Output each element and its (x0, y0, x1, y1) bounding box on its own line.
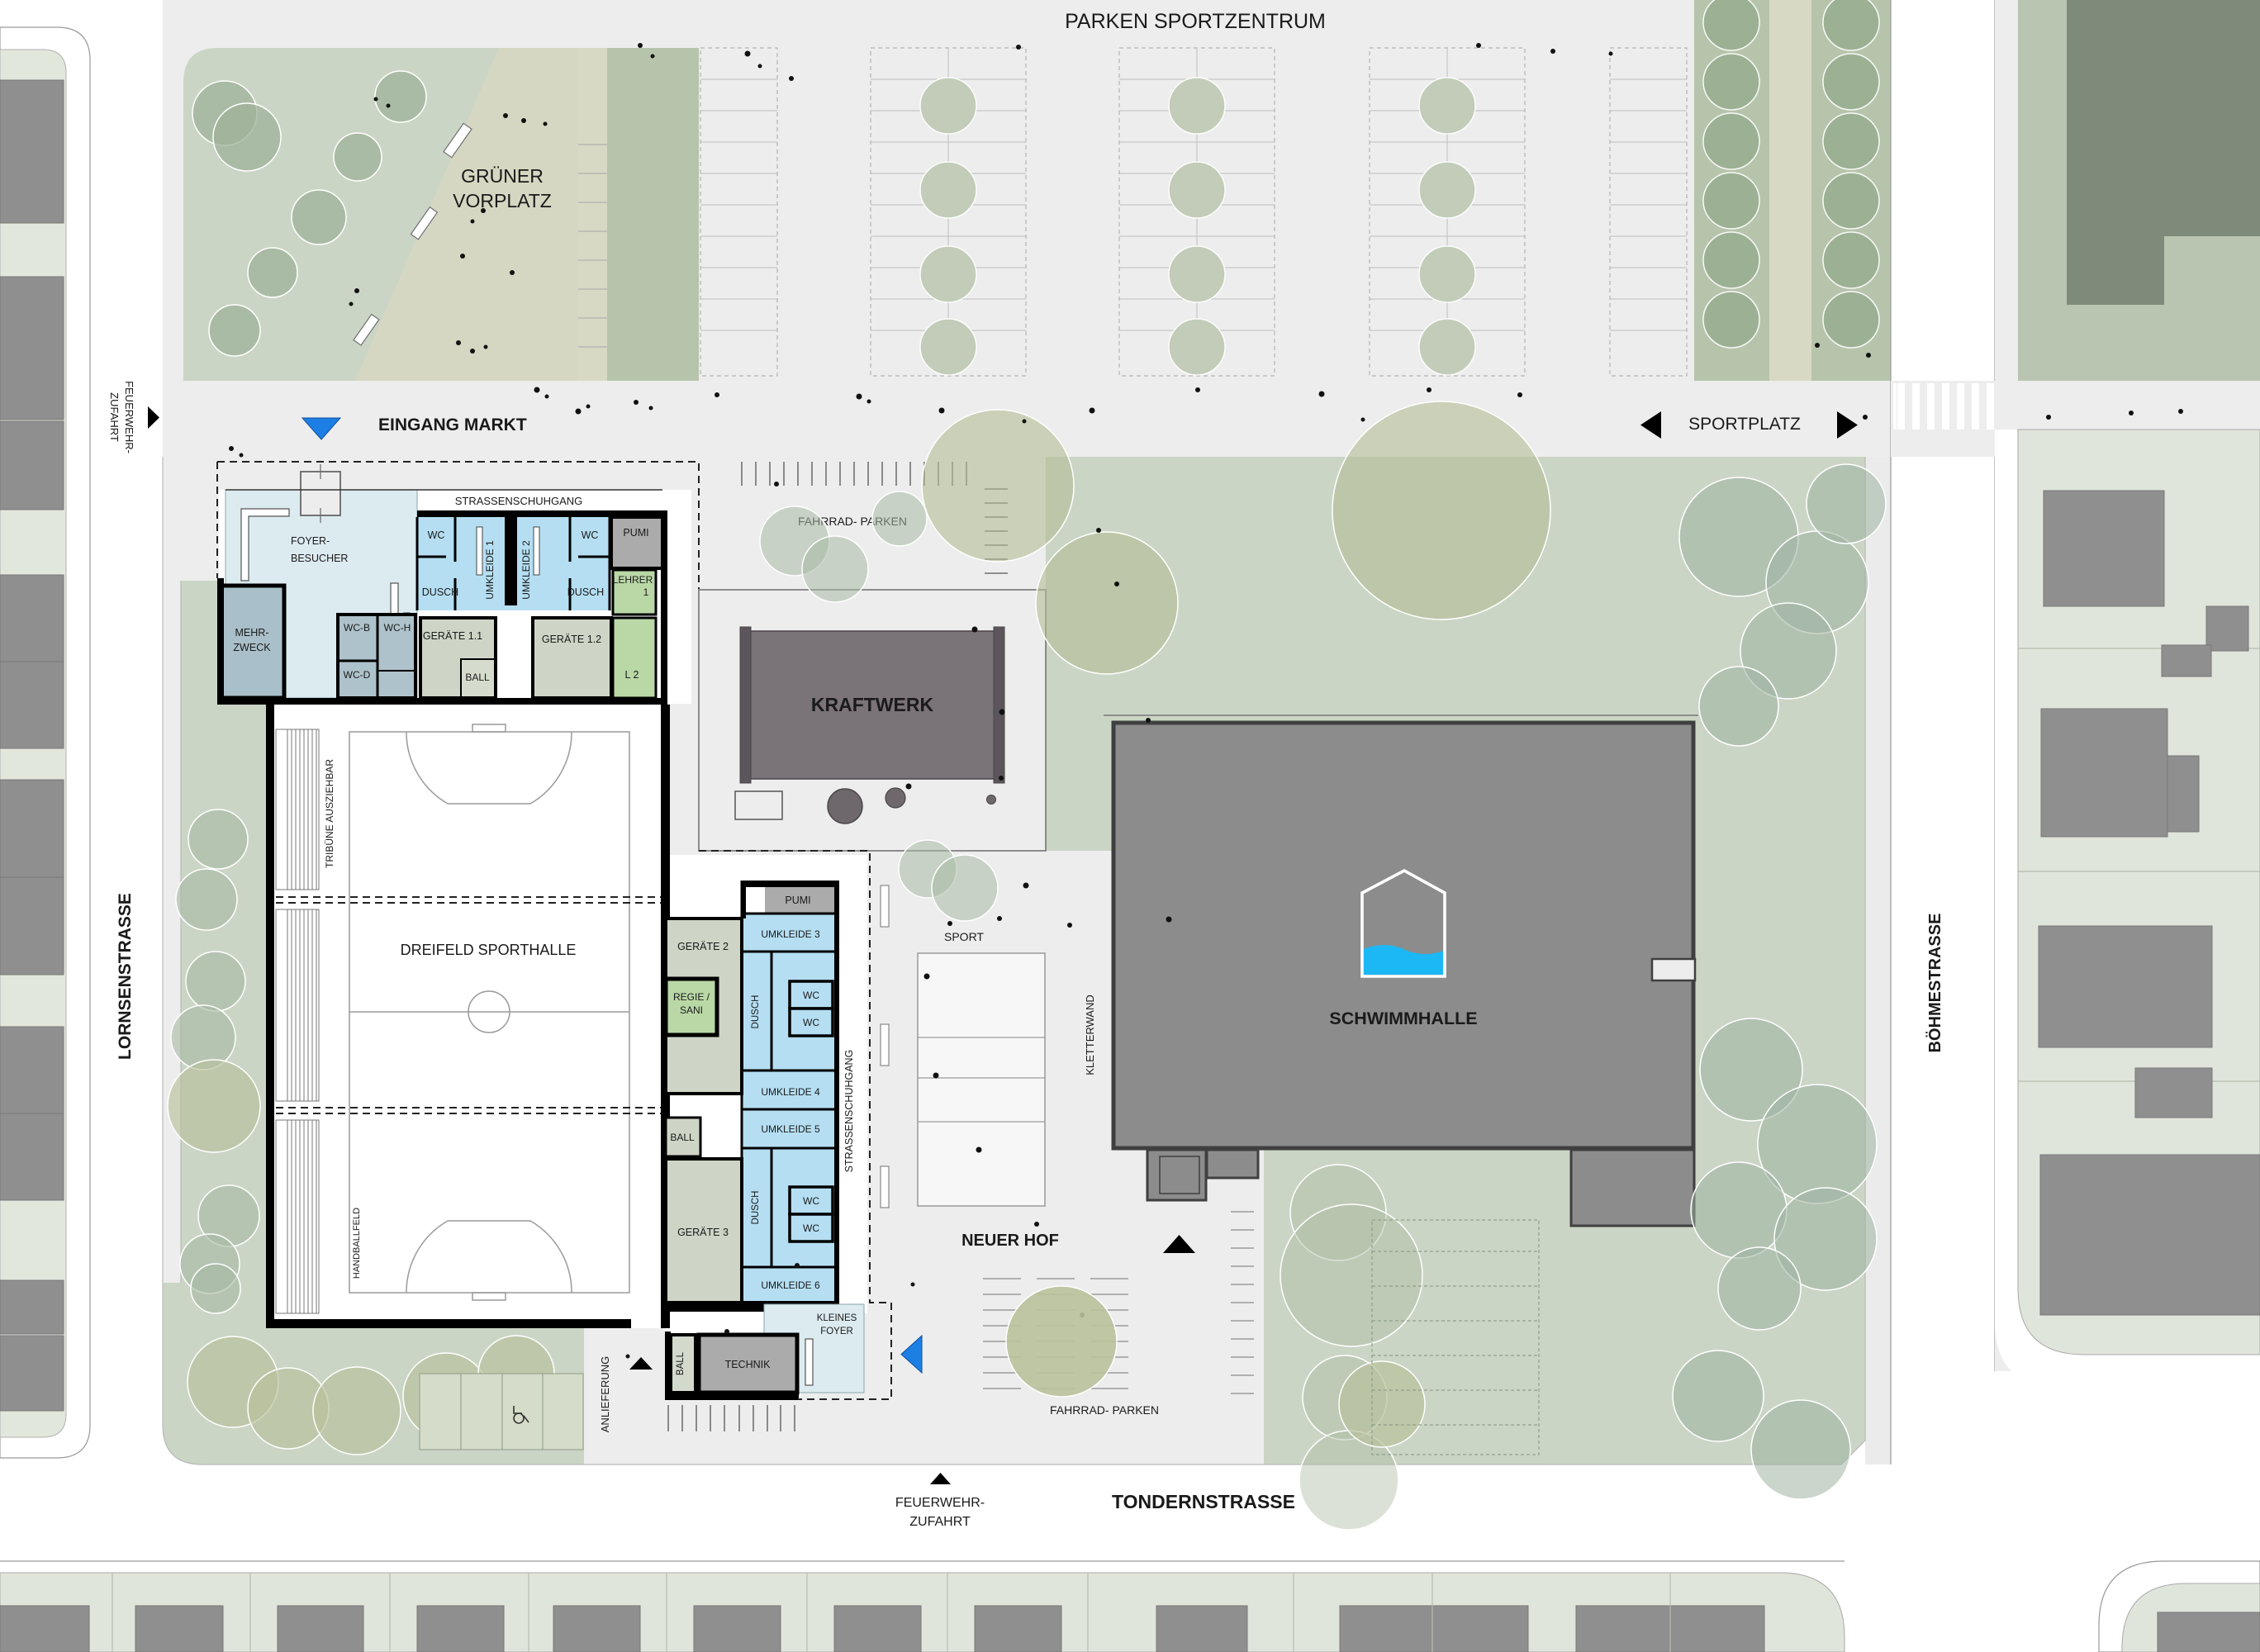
svg-text:1: 1 (643, 586, 649, 598)
svg-text:LEHRER: LEHRER (613, 574, 653, 586)
svg-text:TONDERNSTRASSE: TONDERNSTRASSE (1112, 1491, 1295, 1512)
svg-text:BESUCHER: BESUCHER (291, 553, 348, 564)
svg-text:ANLIEFERUNG: ANLIEFERUNG (599, 1356, 611, 1432)
svg-text:REGIE /: REGIE / (673, 991, 710, 1003)
svg-text:EINGANG MARKT: EINGANG MARKT (378, 415, 527, 434)
svg-text:PARKEN SPORTZENTRUM: PARKEN SPORTZENTRUM (1065, 10, 1326, 33)
svg-text:WC: WC (803, 1222, 819, 1234)
svg-text:UMKLEIDE 4: UMKLEIDE 4 (761, 1086, 820, 1098)
svg-text:WC-B: WC-B (344, 622, 370, 634)
svg-text:SPORTPLATZ: SPORTPLATZ (1688, 415, 1801, 434)
svg-text:BALL: BALL (670, 1132, 695, 1143)
svg-text:ZUFAHRT: ZUFAHRT (909, 1515, 971, 1529)
svg-text:VORPLATZ: VORPLATZ (453, 190, 552, 211)
svg-text:L 2: L 2 (625, 669, 639, 681)
svg-text:GERÄTE 1.2: GERÄTE 1.2 (542, 634, 601, 645)
svg-text:STRASSENSCHUHGANG: STRASSENSCHUHGANG (843, 1050, 855, 1173)
svg-text:PUMI: PUMI (623, 527, 648, 539)
svg-text:WC: WC (803, 1195, 819, 1207)
svg-text:KRAFTWERK: KRAFTWERK (811, 694, 934, 715)
svg-text:WC-D: WC-D (344, 669, 371, 681)
svg-text:STRASSENSCHUHGANG: STRASSENSCHUHGANG (455, 495, 583, 507)
svg-text:WC: WC (803, 990, 819, 1001)
svg-text:KLETTERWAND: KLETTERWAND (1084, 995, 1096, 1075)
svg-text:FOYER-: FOYER- (291, 535, 330, 547)
svg-text:MEHR-: MEHR- (235, 627, 269, 638)
svg-text:SANI: SANI (680, 1004, 703, 1016)
svg-text:LORNSENSTRASSE: LORNSENSTRASSE (116, 893, 135, 1060)
svg-text:SCHWIMMHALLE: SCHWIMMHALLE (1329, 1009, 1477, 1028)
svg-text:UMKLEIDE 2: UMKLEIDE 2 (520, 540, 532, 600)
svg-text:DUSCH: DUSCH (751, 1191, 761, 1225)
svg-text:FAHRRAD- PARKEN: FAHRRAD- PARKEN (1050, 1403, 1159, 1417)
svg-text:KLEINES: KLEINES (817, 1313, 857, 1323)
svg-text:TRIBÜNE AUSZIEHBAR: TRIBÜNE AUSZIEHBAR (324, 759, 335, 868)
svg-text:BALL: BALL (465, 672, 490, 683)
svg-text:WC: WC (582, 529, 599, 541)
svg-text:WC-H: WC-H (384, 622, 411, 634)
svg-text:DREIFELD SPORTHALLE: DREIFELD SPORTHALLE (401, 942, 577, 958)
svg-text:DUSCH: DUSCH (751, 995, 761, 1029)
svg-text:FOYER: FOYER (820, 1327, 853, 1336)
svg-text:ZUFAHRT: ZUFAHRT (108, 392, 121, 442)
svg-text:FEUERWEHR-: FEUERWEHR- (895, 1496, 985, 1510)
svg-text:FEUERWEHR-: FEUERWEHR- (123, 381, 135, 453)
svg-text:UMKLEIDE 3: UMKLEIDE 3 (761, 928, 820, 940)
svg-text:BÖHMESTRASSE: BÖHMESTRASSE (1925, 914, 1944, 1053)
svg-text:GERÄTE 3: GERÄTE 3 (677, 1227, 729, 1238)
svg-text:ZWECK: ZWECK (233, 642, 271, 653)
svg-text:UMKLEIDE 5: UMKLEIDE 5 (761, 1123, 820, 1135)
svg-text:TECHNIK: TECHNIK (725, 1359, 772, 1370)
svg-text:UMKLEIDE 6: UMKLEIDE 6 (761, 1279, 820, 1291)
svg-text:GRÜNER: GRÜNER (461, 165, 544, 187)
svg-text:DUSCH: DUSCH (422, 586, 458, 598)
svg-text:UMKLEIDE 1: UMKLEIDE 1 (484, 540, 496, 600)
svg-text:PUMI: PUMI (785, 895, 810, 906)
svg-text:SPORT: SPORT (944, 930, 984, 943)
svg-text:BALL: BALL (676, 1351, 686, 1375)
svg-text:GERÄTE 1.1: GERÄTE 1.1 (423, 630, 482, 642)
svg-text:WC: WC (428, 529, 445, 541)
svg-text:HANDBALLFELD: HANDBALLFELD (352, 1208, 362, 1279)
svg-text:DUSCH: DUSCH (567, 586, 604, 598)
svg-text:WC: WC (803, 1017, 819, 1028)
svg-text:NEUER HOF: NEUER HOF (961, 1232, 1059, 1250)
svg-text:GERÄTE 2: GERÄTE 2 (677, 941, 729, 952)
